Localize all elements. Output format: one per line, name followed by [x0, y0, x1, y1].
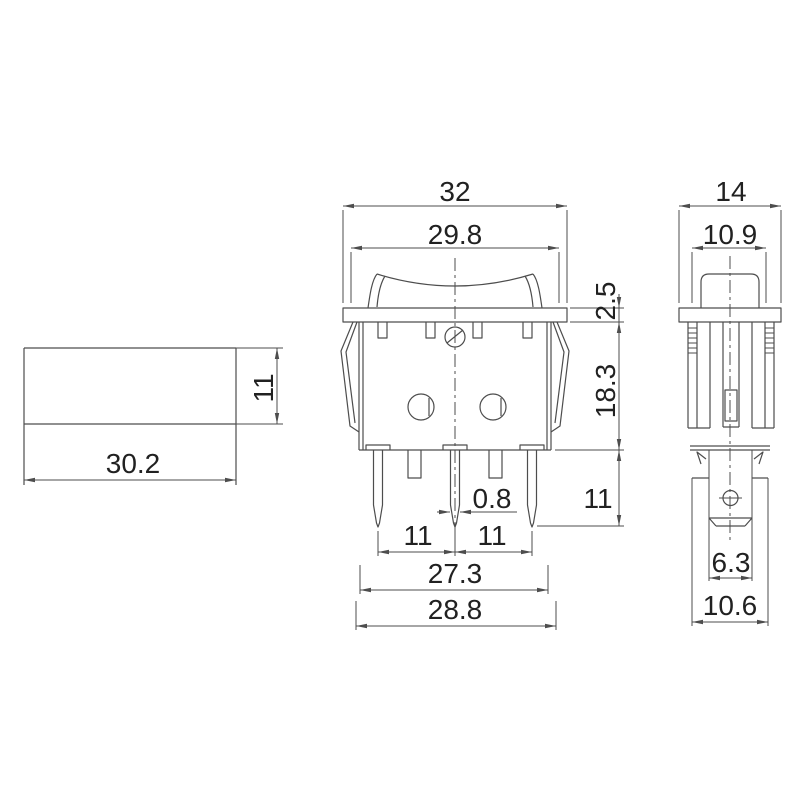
front-body-height-label: 18.3 — [590, 364, 621, 419]
front-rivet-right — [480, 394, 506, 420]
side-leg-left-ribs — [688, 328, 697, 353]
front-upper-body-width-label: 28.8 — [428, 594, 483, 625]
side-leg-right — [752, 322, 774, 428]
drawing-canvas: 30.2 11 — [0, 0, 800, 800]
front-terminal-pitch-right-label: 11 — [477, 520, 506, 551]
front-lower-body-width-label: 27.3 — [428, 558, 483, 589]
side-bezel-inner-depth-label: 10.9 — [703, 219, 758, 250]
side-dim-bezel-inner-depth: 10.9 — [692, 219, 766, 303]
side-post-window — [725, 390, 737, 421]
front-view: 32 29.8 2.5 18.3 11 0.8 — [341, 176, 624, 630]
side-terminal-blade-width-label: 6.3 — [712, 547, 751, 578]
panel-cutout-view: 30.2 11 — [24, 348, 283, 485]
dimension-drawing: 30.2 11 — [0, 0, 800, 800]
cutout-width-dimension: 30.2 — [24, 448, 236, 482]
cutout-width-label: 30.2 — [106, 448, 161, 479]
pin-right — [528, 450, 537, 527]
front-mounting-clip-right — [551, 322, 569, 432]
side-overall-depth-label: 14 — [715, 176, 746, 207]
pin-seat-right — [520, 445, 544, 450]
front-dim-upper-body-width: 28.8 — [356, 594, 556, 630]
front-dim-terminal-thickness: 0.8 — [437, 483, 517, 514]
side-leg-right-ribs — [765, 328, 774, 353]
front-right-side-dimensions: 2.5 18.3 11 — [537, 282, 624, 526]
front-terminal-length-label: 11 — [583, 483, 612, 514]
side-clip-barb-left — [697, 452, 706, 464]
side-body-depth-label: 10.6 — [703, 590, 758, 621]
front-bezel-inner-width-label: 29.8 — [428, 219, 483, 250]
side-view: 14 10.9 6.3 10.6 — [679, 176, 781, 626]
front-rivet-left — [408, 394, 434, 420]
side-center-post — [723, 322, 739, 427]
front-mounting-clip-left — [341, 322, 359, 432]
front-terminal-pitch-left-label: 11 — [403, 520, 432, 551]
pin-left — [374, 450, 383, 527]
cutout-height-dimension: 11 — [236, 348, 283, 424]
front-dim-lower-body-width: 27.3 — [360, 558, 548, 594]
side-leg-left — [688, 322, 710, 428]
pin-seat-left — [366, 445, 390, 450]
side-clip-barb-right — [754, 452, 763, 464]
cutout-height-label: 11 — [248, 373, 279, 402]
front-bezel-thickness-label: 2.5 — [590, 282, 621, 321]
front-overall-width-label: 32 — [439, 176, 470, 207]
front-terminal-thickness-label: 0.8 — [473, 483, 512, 514]
